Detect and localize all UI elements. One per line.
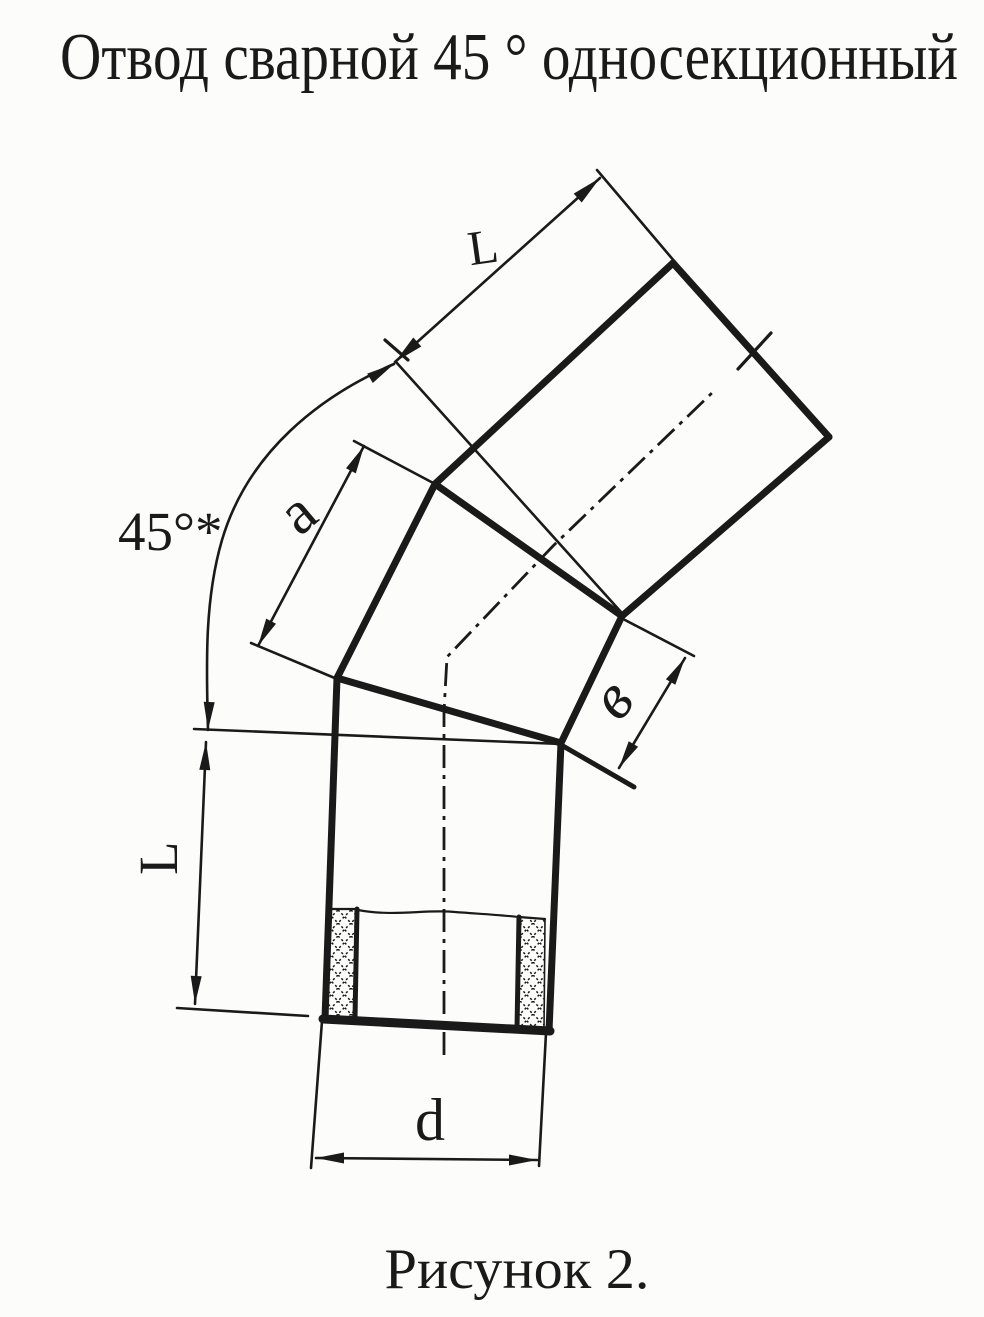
wall-section-hatching	[326, 909, 545, 1030]
angle-arc-45	[207, 364, 394, 730]
dim-line-a	[258, 446, 364, 646]
left-wall-hatch	[326, 909, 357, 1019]
page-title: Отвод сварной 45 ° односекционный	[60, 20, 958, 94]
pipe-outline	[323, 263, 829, 1031]
ext-line-a-upper	[354, 441, 437, 485]
upper-weld-seam	[435, 484, 622, 616]
top-pipe-end-face	[673, 263, 829, 437]
ext-line-top-corner	[597, 170, 675, 262]
bore-break-line	[358, 910, 518, 917]
arrowheads	[191, 178, 685, 1166]
dim-line-d	[316, 1158, 537, 1160]
label-top-pipe-length: L	[464, 218, 501, 277]
arrowhead-b-lower	[619, 741, 638, 768]
right-wall-inner-edge	[517, 917, 519, 1029]
elbow-technical-drawing: Отвод сварной 45 ° односекционный	[0, 0, 984, 1317]
top-pipe-inner-wall	[622, 437, 829, 616]
arrowhead-a-upper	[346, 446, 364, 473]
ext-line-d-right	[539, 1033, 546, 1166]
ext-line-leg-top	[194, 729, 561, 744]
scanned-drawing-page: Отвод сварной 45 ° односекционный	[0, 0, 984, 1317]
dim-line-L-left	[195, 742, 206, 1004]
label-diameter: d	[415, 1087, 445, 1153]
ext-line-a-lower	[251, 643, 337, 679]
label-segment-outer-edge: a	[265, 478, 330, 548]
arrowhead-d-right	[509, 1155, 537, 1166]
segment-outer-edge-line	[337, 484, 435, 678]
left-wall-inner-edge	[355, 909, 357, 1018]
arrowhead-b-upper	[666, 658, 685, 685]
lower-weld-seam	[337, 678, 561, 743]
top-pipe-outer-wall	[435, 263, 673, 484]
lower-weld-seam-extension	[563, 746, 634, 787]
label-bottom-pipe-length: L	[128, 841, 189, 875]
right-wall-hatch	[517, 917, 545, 1030]
arrowhead-arc-lower	[204, 702, 215, 730]
arrowhead-d-left	[316, 1153, 344, 1164]
ext-line-d-left	[311, 1021, 322, 1168]
arrowhead-a-lower	[258, 619, 276, 646]
ext-line-leg-bottom	[177, 1008, 308, 1016]
label-bend-angle: 45°*	[118, 501, 223, 562]
bottom-pipe-right-wall	[549, 743, 561, 1031]
arrowhead-arc-upper	[367, 364, 394, 383]
ext-line-b-top	[625, 620, 694, 656]
figure-caption: Рисунок 2.	[385, 1238, 650, 1301]
